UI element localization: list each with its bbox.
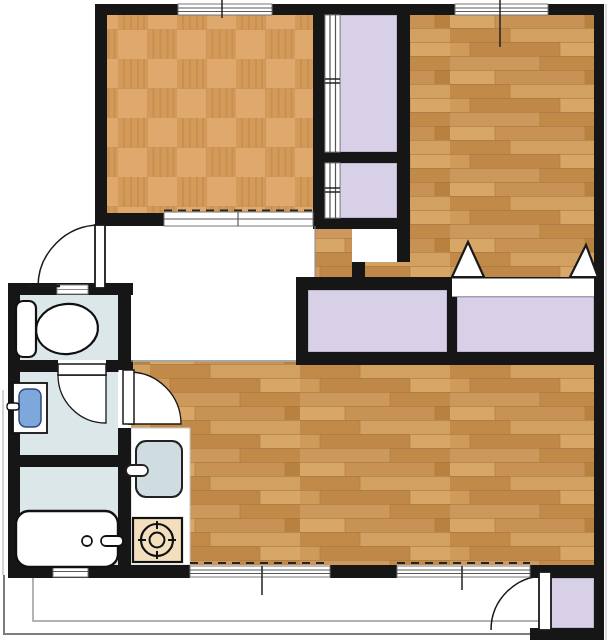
wall-bedroom2-left [397,4,410,262]
wall-right [594,4,604,640]
toilet-door-threshold [57,285,88,294]
balcony-storage-room [550,578,594,628]
washbasin-fixture [7,383,47,433]
floor-plan [0,0,608,640]
washbasin-faucet [7,403,19,410]
wall-toilet-washroom-a [8,360,58,372]
toilet-tank [16,301,36,357]
hall-wood-floor [315,226,352,277]
bathtub-faucet [101,536,123,546]
washbasin-bowl [19,389,41,427]
storage-door-leaf [539,572,551,630]
wall-washroom-bathroom [8,455,118,467]
closet-center-left [308,290,447,352]
bedroom-2-floor [410,15,594,277]
bathtub-drain [82,536,92,546]
wall-center-closet-left [296,277,308,352]
sliding-door-bedroom1 [164,211,313,227]
closet-sliding-door-lower [325,163,340,218]
wall-center-closet-top [296,277,452,290]
kitchen-sink-faucet [126,465,148,476]
living-dining-kitchen-floor [131,362,594,565]
closet-upper [340,15,397,152]
gas-burner-fixture [133,518,182,562]
wall-bottom-mid [330,565,397,578]
entry-door-leaf [95,225,105,288]
wall-column-right-lower [118,428,131,578]
ldk-door-leaf [123,370,134,424]
wall-tatami-left [95,4,107,226]
washroom-door-leaf [58,364,106,375]
wall-column-right-upper [118,283,131,370]
bathtub-fixture [16,511,123,567]
bedroom-2-alcove-floor [365,262,410,277]
wall-center-closet-bottom [296,352,604,365]
bedroom-tatami-floor [107,15,313,213]
closet-sliding-door-upper [325,15,340,152]
closet-front-band [452,277,594,297]
closet-center-right [457,297,594,352]
wall-tatami-right [313,4,325,226]
wall-closet-bottom [313,218,410,229]
closet-lower [340,163,397,218]
